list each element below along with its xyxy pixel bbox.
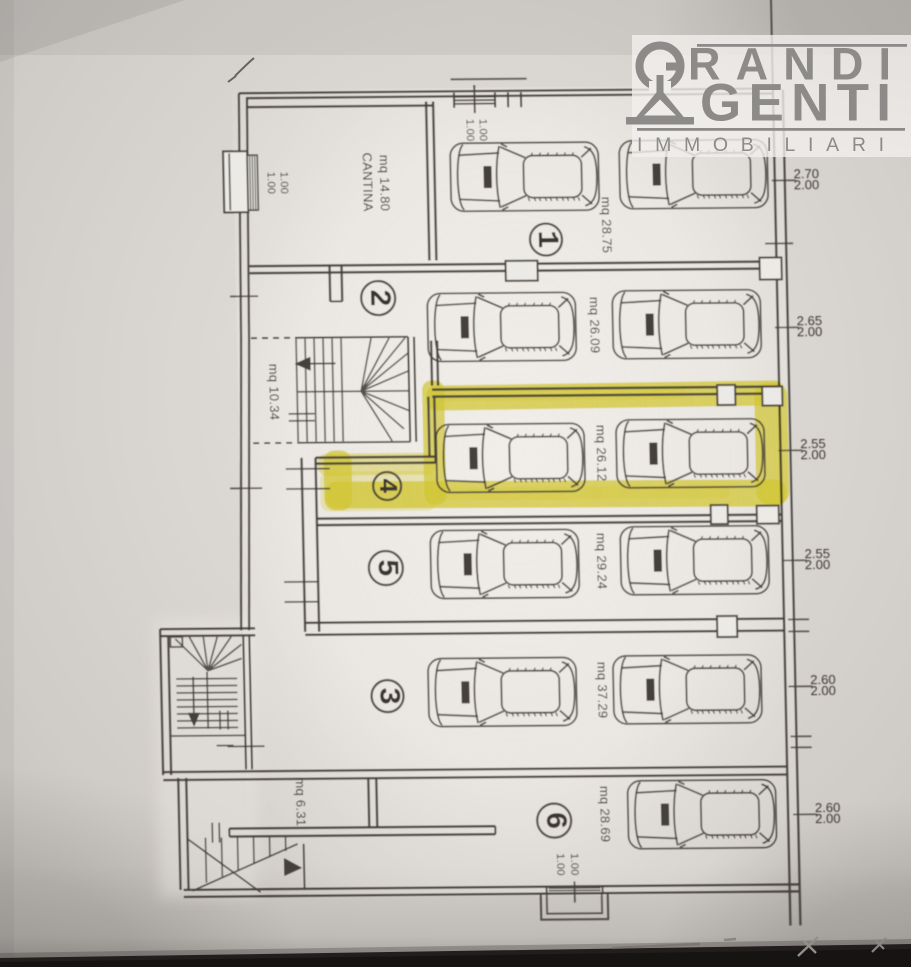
svg-text:1.00: 1.00	[554, 853, 566, 876]
svg-text:1.00: 1.00	[476, 119, 488, 142]
svg-text:mq 28.75: mq 28.75	[599, 197, 615, 254]
svg-text:GENTI: GENTI	[700, 74, 891, 133]
svg-text:mq 37.29: mq 37.29	[594, 662, 610, 719]
svg-text:mq 29.24: mq 29.24	[594, 533, 610, 590]
svg-text:mq 28.69: mq 28.69	[597, 786, 613, 843]
svg-text:2.00: 2.00	[815, 811, 841, 826]
svg-text:mq 26.12: mq 26.12	[593, 425, 609, 482]
svg-text:mq 14.80: mq 14.80	[377, 155, 393, 212]
svg-text:mq 10.34: mq 10.34	[266, 364, 282, 421]
svg-text:mq 6.31: mq 6.31	[293, 777, 309, 826]
svg-text:2.00: 2.00	[810, 683, 836, 698]
svg-text:2.00: 2.00	[800, 447, 826, 462]
svg-text:3: 3	[370, 687, 404, 706]
svg-text:5: 5	[369, 559, 403, 578]
svg-text:2.00: 2.00	[805, 557, 831, 572]
svg-text:CANTINA: CANTINA	[360, 152, 376, 211]
svg-text:mq 26.09: mq 26.09	[587, 297, 603, 354]
svg-text:2.00: 2.00	[797, 324, 823, 339]
svg-text:1.00: 1.00	[264, 172, 276, 195]
svg-text:2.00: 2.00	[794, 177, 820, 192]
svg-text:1.00: 1.00	[463, 119, 475, 142]
svg-text:1.00: 1.00	[277, 172, 289, 195]
svg-text:1: 1	[529, 230, 563, 249]
svg-text:1.00: 1.00	[568, 853, 580, 876]
svg-text:4: 4	[372, 478, 402, 494]
svg-text:2: 2	[361, 289, 395, 308]
svg-text:6: 6	[537, 811, 571, 830]
